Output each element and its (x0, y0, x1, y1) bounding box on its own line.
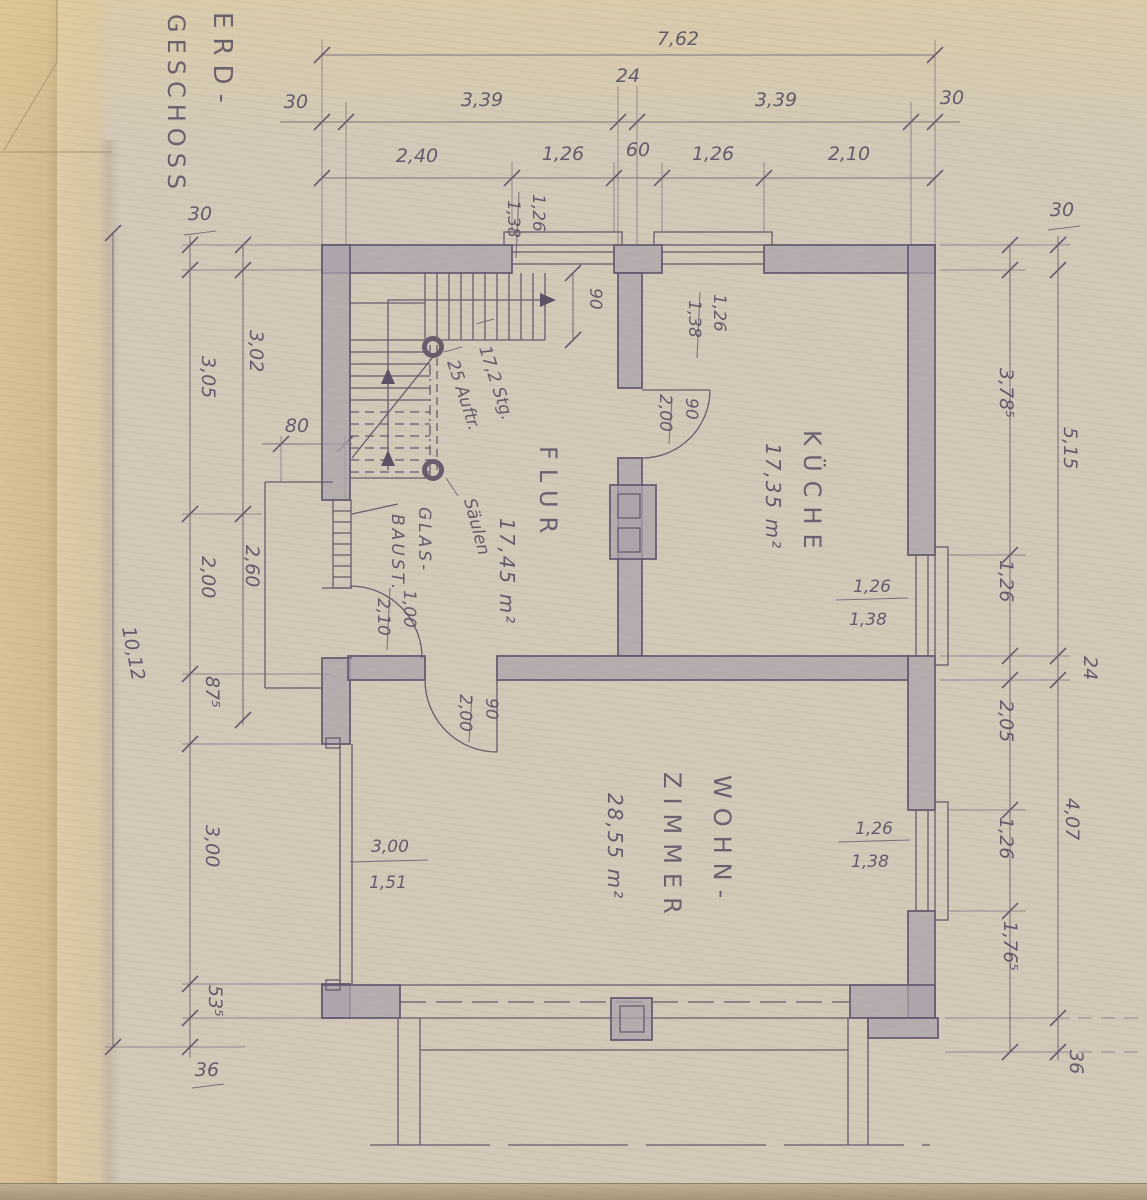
dim-right-30: 30 (1050, 199, 1074, 221)
scanned-floor-plan-sheet: ERD- GESCHOSS 7,62 30 3,39 24 3,39 30 2,… (0, 0, 1147, 1200)
dim-right-3785: 3,78⁵ (995, 368, 1017, 418)
living-right-window-width: 1,26 (855, 819, 893, 839)
room-label-wohn-1: WOHN- (708, 775, 736, 907)
bottom-wall-opening (400, 985, 850, 1040)
dim-right-1765: 1,76⁵ (999, 921, 1021, 971)
dim-right-24: 24 (1079, 656, 1101, 680)
glass-label-2: BAUST. (387, 514, 407, 592)
living-right-window-sill (935, 802, 948, 920)
dim-top-339-right: 3,39 (755, 89, 797, 111)
sheet-title: ERD- GESCHOSS (162, 12, 237, 195)
dim-left-302: 3,02 (245, 330, 267, 372)
entrance-bay (265, 482, 333, 688)
dim-top-126-left: 1,26 (542, 143, 584, 165)
room-label-flur: FLUR (534, 446, 562, 542)
bottom-pillar (611, 998, 652, 1040)
dim-left-260: 2,60 (241, 545, 263, 587)
dim-left-200: 2,00 (197, 556, 219, 598)
glass-block-wall: GLAS- BAUST. (333, 500, 434, 592)
dim-right-515: 5,15 (1059, 427, 1081, 469)
floor-plan-drawing: ERD- GESCHOSS 7,62 30 3,39 24 3,39 30 2,… (0, 0, 1147, 1200)
entrance-door-height: 2,10 (373, 598, 393, 636)
living-door-width: 90 (481, 698, 501, 720)
paper-creases (0, 0, 112, 152)
kitchen-top-window-height: 1,38 (684, 300, 704, 338)
kitchen-door-width: 90 (681, 398, 701, 420)
stair-column-top (425, 339, 442, 356)
kitchen-top-window-width: 1,26 (709, 294, 729, 332)
dim-top-126-right: 1,26 (692, 143, 734, 165)
kitchen-door-height: 2,00 (655, 394, 675, 432)
flur-top-window-width: 1,26 (528, 194, 548, 232)
dim-left-36: 36 (195, 1059, 219, 1081)
living-door: 90 2,00 (425, 656, 501, 752)
kitchen-right-window-height: 1,38 (849, 610, 887, 630)
stair-risers-label: 17,2 Stg. (474, 343, 517, 422)
dim-right-126-top: 1,26 (995, 560, 1017, 602)
dim-top-24: 24 (616, 65, 640, 87)
dimension-chain-left: 30 3,05 2,00 87⁵ 3,00 53⁵ 36 3,02 2,60 8… (105, 203, 398, 1088)
window-label-living-right: 1,26 1,38 (838, 819, 910, 872)
dimension-chain-top: 7,62 30 3,39 24 3,39 30 2,40 1,26 60 1,2… (280, 28, 964, 245)
glass-label-1: GLAS- (414, 507, 434, 573)
dim-top-210: 2,10 (828, 143, 870, 165)
dim-left-875: 87⁵ (201, 676, 223, 708)
window-label-kitchen-right: 1,26 1,38 (836, 577, 908, 630)
window-label-living-left: 3,00 1,51 (350, 837, 428, 893)
dim-right-205: 2,05 (995, 700, 1017, 742)
chimney-block (610, 485, 656, 559)
stair-column-bottom (425, 462, 442, 479)
room-area-flur: 17,45 m² (495, 518, 519, 625)
living-right-window-height: 1,38 (851, 852, 889, 872)
dim-top-30-right: 30 (940, 87, 964, 109)
kitchen-top-window-sill (654, 232, 772, 245)
living-left-window-height: 1,51 (369, 873, 407, 893)
stair-landing-width: 90 (585, 288, 605, 310)
dim-top-overall: 7,62 (657, 28, 699, 50)
window-label-kitchen-top: 1,26 1,38 (684, 292, 729, 358)
dim-left-80: 80 (285, 415, 309, 437)
dim-left-305: 3,05 (197, 356, 219, 398)
kitchen-door: 90 2,00 (618, 388, 710, 458)
stair-columns-label: Säulen (459, 496, 493, 557)
dim-top-240: 2,40 (396, 145, 438, 167)
dim-left-total: 10,12 (117, 625, 149, 683)
kitchen-right-window-width: 1,26 (853, 577, 891, 597)
dim-left-535: 53⁵ (204, 985, 226, 1017)
room-area-kueche: 17,35 m² (761, 443, 785, 550)
dim-top-339-left: 3,39 (461, 89, 503, 111)
dim-left-300: 3,00 (201, 825, 223, 867)
stair-treads-label: 25 Auftr. (442, 357, 484, 433)
dim-right-126-mid: 1,26 (995, 817, 1017, 859)
dim-top-60: 60 (626, 139, 650, 161)
living-door-height: 2,00 (455, 694, 475, 732)
room-label-wohn-2: ZIMMER (658, 772, 686, 923)
room-area-wohn: 28,55 m² (603, 793, 627, 900)
entrance-door-width: 1,00 (399, 590, 419, 628)
entrance-door: 1,00 2,10 (322, 586, 422, 658)
dim-right-407: 4,07 (1061, 798, 1083, 840)
dim-top-30-left: 30 (284, 91, 308, 113)
dim-right-36: 36 (1065, 1050, 1087, 1074)
title-line1: ERD- (207, 12, 237, 112)
dimension-chain-right: 30 5,15 4,07 36 3,78⁵ 1,26 24 2,05 1,26 … (940, 199, 1140, 1074)
room-label-kueche: KÜCHE (798, 430, 827, 558)
kitchen-right-window-sill (935, 547, 948, 665)
title-line2: GESCHOSS (162, 14, 190, 195)
living-left-window-width: 3,00 (371, 837, 409, 857)
dim-left-30: 30 (188, 203, 212, 225)
